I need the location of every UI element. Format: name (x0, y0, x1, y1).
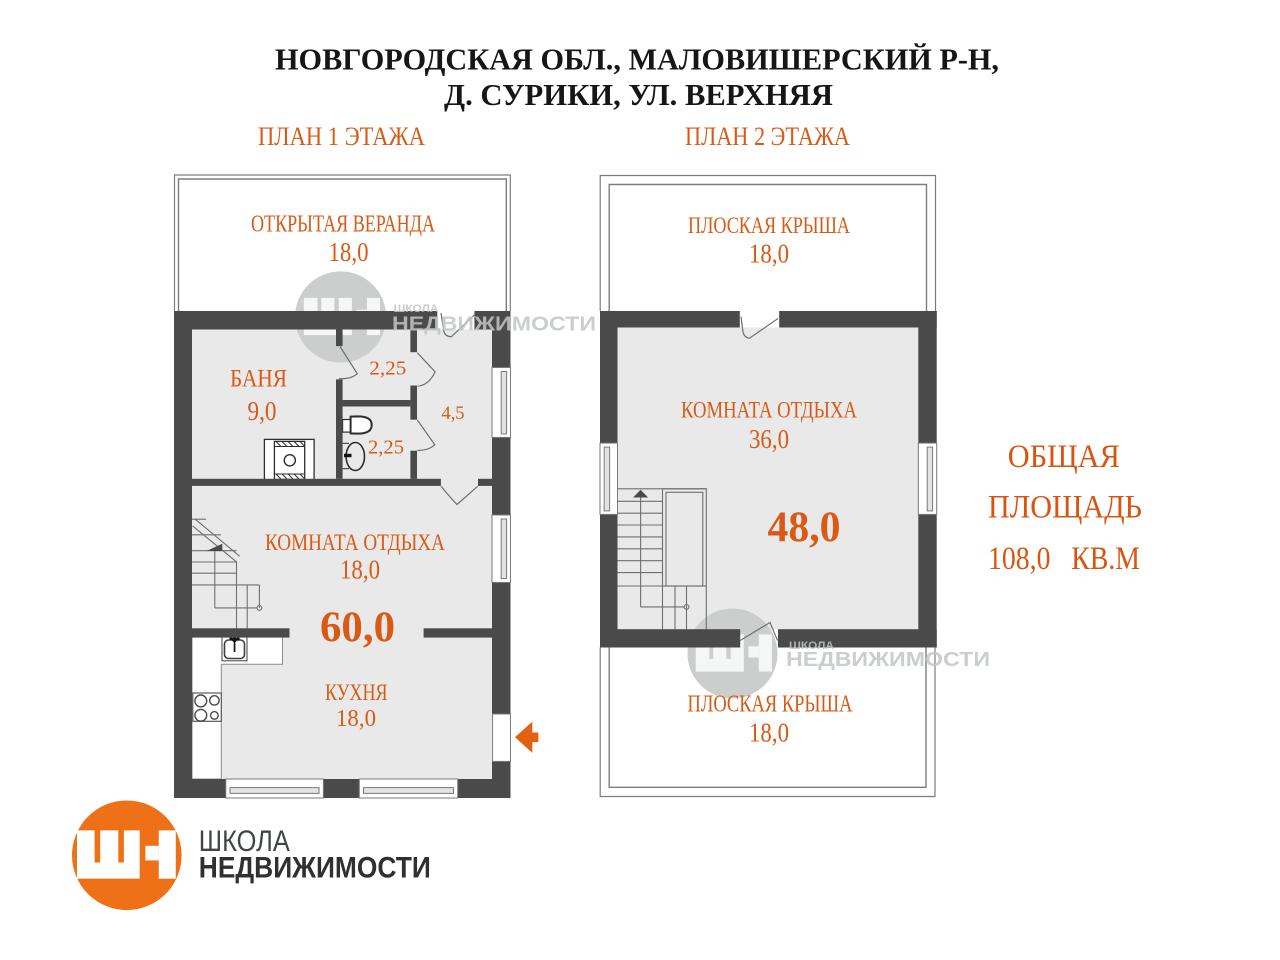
svg-text:КОМНАТА ОТДЫХА: КОМНАТА ОТДЫХА (265, 530, 445, 555)
svg-text:ПЛОЩАДЬ: ПЛОЩАДЬ (988, 490, 1142, 526)
svg-text:18,0: 18,0 (340, 555, 380, 585)
svg-text:18,0: 18,0 (329, 237, 369, 267)
svg-text:9,0: 9,0 (248, 396, 277, 426)
svg-text:НОВГОРОДСКАЯ ОБЛ., МАЛОВИШЕРСК: НОВГОРОДСКАЯ ОБЛ., МАЛОВИШЕРСКИЙ Р-Н, (275, 42, 999, 77)
svg-text:КОМНАТА ОТДЫХА: КОМНАТА ОТДЫХА (681, 398, 857, 423)
svg-text:ПЛАН 1 ЭТАЖА: ПЛАН 1 ЭТАЖА (258, 122, 425, 151)
svg-text:ОБЩАЯ: ОБЩАЯ (1008, 439, 1120, 475)
svg-text:КУХНЯ: КУХНЯ (325, 680, 388, 705)
svg-text:18,0: 18,0 (336, 706, 376, 732)
svg-text:48,0: 48,0 (768, 504, 841, 551)
svg-text:Д. СУРИКИ, УЛ. ВЕРХНЯЯ: Д. СУРИКИ, УЛ. ВЕРХНЯЯ (444, 77, 833, 112)
svg-text:ПЛАН 2 ЭТАЖА: ПЛАН 2 ЭТАЖА (685, 122, 850, 151)
svg-text:ПЛОСКАЯ КРЫША: ПЛОСКАЯ КРЫША (688, 692, 854, 718)
svg-text:2,25: 2,25 (369, 358, 406, 380)
svg-text:2,25: 2,25 (368, 436, 404, 458)
svg-text:108,0 КВ.М: 108,0 КВ.М (988, 541, 1140, 577)
svg-text:ПЛОСКАЯ КРЫША: ПЛОСКАЯ КРЫША (688, 213, 850, 238)
svg-text:18,0: 18,0 (749, 718, 789, 748)
svg-text:НЕДВИЖИМОСТИ: НЕДВИЖИМОСТИ (786, 648, 990, 671)
svg-text:ОТКРЫТАЯ ВЕРАНДА: ОТКРЫТАЯ ВЕРАНДА (251, 212, 435, 238)
svg-text:4,5: 4,5 (442, 403, 465, 424)
svg-text:БАНЯ: БАНЯ (230, 365, 287, 392)
svg-text:60,0: 60,0 (320, 604, 395, 651)
svg-text:36,0: 36,0 (749, 424, 789, 454)
svg-text:18,0: 18,0 (749, 239, 789, 269)
svg-text:НЕДВИЖИМОСТИ: НЕДВИЖИМОСТИ (392, 313, 596, 336)
svg-text:НЕДВИЖИМОСТИ: НЕДВИЖИМОСТИ (199, 852, 431, 885)
